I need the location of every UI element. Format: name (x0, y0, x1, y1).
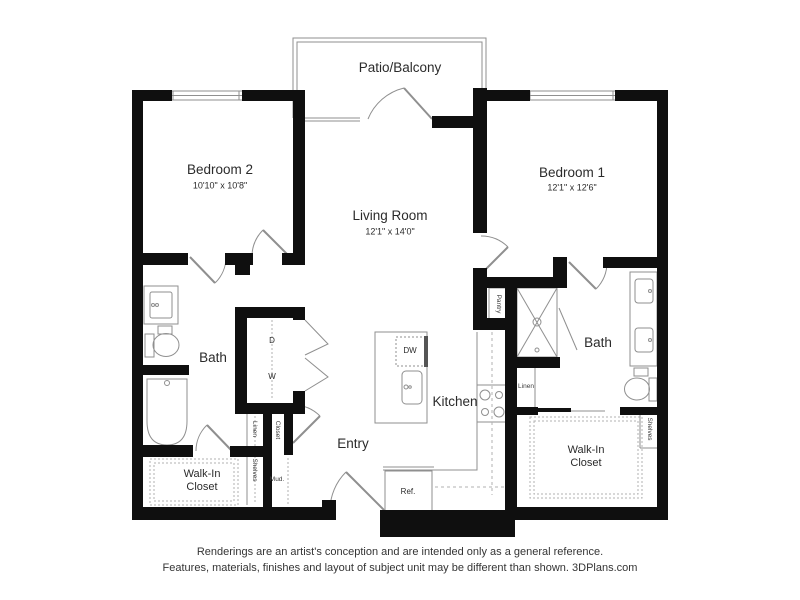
patio-label: Patio/Balcony (359, 60, 442, 76)
pantry-label: Pantry (494, 295, 502, 314)
wall-top-d (615, 90, 668, 101)
closet-sliding-door (537, 408, 605, 412)
kitchen-label: Kitchen (432, 394, 477, 410)
toilet-right (625, 378, 658, 401)
toilet-left (145, 334, 179, 358)
wall-hall-closet-v2 (284, 414, 293, 455)
wall-bath-right-top (603, 257, 668, 268)
wall-bedroom1-bottom-a (487, 277, 553, 288)
wall-bottom-left (132, 507, 322, 520)
patio-rail (293, 38, 486, 118)
wall-bedroom1-bottom-riser (553, 257, 567, 288)
bedroom2-label: Bedroom 2 (187, 162, 253, 178)
wall-bath-right-bottom-a (512, 407, 538, 415)
patio-rail-inner (297, 42, 482, 118)
vanity-left (144, 286, 178, 334)
wall-bedroom2-bottom-c (282, 253, 305, 265)
living-room-dims: 12'1" x 14'0" (365, 227, 414, 238)
patio-door-track (305, 118, 360, 121)
bedroom1-window (524, 91, 619, 100)
dryer-label: D (269, 336, 275, 346)
bath-left-closet-door (196, 425, 232, 451)
wall-entry-stub (322, 500, 336, 520)
shower (517, 288, 577, 357)
wall-bath-right-bottom-b (620, 407, 668, 415)
shelves-right-label: Shelves (645, 417, 653, 440)
wall-bedroom2-bottom-a (132, 253, 188, 265)
wall-top-b (242, 90, 305, 101)
walkin-closet-left-label: Walk-In Closet (170, 468, 234, 494)
laundry-bifold-doors (305, 320, 328, 391)
wall-shower-bottom (513, 357, 560, 368)
disclaimer-line-2: Features, materials, finishes and layout… (0, 562, 800, 574)
bath-left-label: Bath (199, 350, 227, 366)
wall-patio-bottom-right (432, 116, 473, 128)
wall-pantry-left (473, 268, 487, 330)
wall-bottom-right (515, 507, 668, 520)
wall-laundry-left (235, 307, 247, 414)
wall-hall-closet-v1 (263, 414, 272, 507)
wall-laundry-right-top (293, 307, 305, 320)
floor-plan: Patio/Balcony Bedroom 2 10'10" x 10'8" B… (0, 0, 800, 600)
wall-laundry-right-bottom (293, 391, 305, 414)
entry-label: Entry (337, 436, 369, 452)
bedroom2-dims: 10'10" x 10'8" (193, 181, 247, 192)
bedroom2-window (167, 91, 245, 100)
bedroom1-dims: 12'1" x 12'6" (547, 183, 596, 194)
shelves-left-label: Shelves (250, 458, 258, 481)
wall-bath-left-divider (132, 365, 189, 375)
refrigerator-label: Ref. (401, 487, 416, 497)
wall-tub-bottom (132, 445, 193, 457)
disclaimer-line-1: Renderings are an artist's conception an… (0, 546, 800, 558)
wall-bottom-middle (380, 510, 515, 537)
bedroom1-label: Bedroom 1 (539, 165, 605, 181)
walkin-closet-right-label: Walk-In Closet (554, 444, 618, 470)
wall-outer-right (657, 90, 668, 520)
mud-label: Mud. (270, 476, 284, 484)
entry-door (330, 472, 384, 510)
wall-top-a (132, 90, 172, 101)
linen-left-label: Linen (250, 421, 258, 437)
closet-label: Closet (273, 421, 281, 439)
vanity-right (630, 272, 657, 376)
linen-right-label: Linen (518, 383, 534, 391)
dishwasher-label: DW (403, 346, 416, 356)
kitchen-island (375, 332, 428, 423)
wall-bedroom2-right (293, 101, 305, 265)
bath-right-label: Bath (584, 335, 612, 351)
wall-bedroom2-bottom-b (225, 253, 253, 265)
wall-bedroom2-bottom-stub (235, 265, 250, 275)
bath-left-hall-door (190, 257, 226, 283)
bath-right-door (569, 262, 607, 289)
bathtub (147, 379, 187, 445)
washer-label: W (268, 372, 276, 382)
patio-door (368, 88, 432, 119)
wall-bedroom1-left (473, 88, 487, 233)
wall-kitchen-right (505, 280, 517, 520)
living-room-label: Living Room (352, 208, 427, 224)
